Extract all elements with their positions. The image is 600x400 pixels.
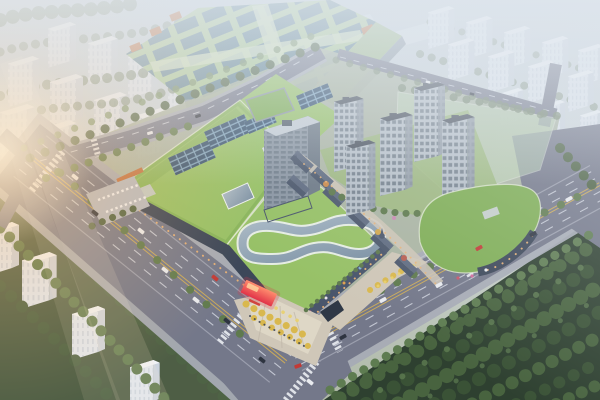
haze-overlay <box>0 0 600 400</box>
atmosphere <box>0 0 600 400</box>
aerial-rendering: Aerial rendering of a mixed-use retail c… <box>0 0 600 400</box>
scene-canvas: Aerial rendering of a mixed-use retail c… <box>0 0 600 400</box>
